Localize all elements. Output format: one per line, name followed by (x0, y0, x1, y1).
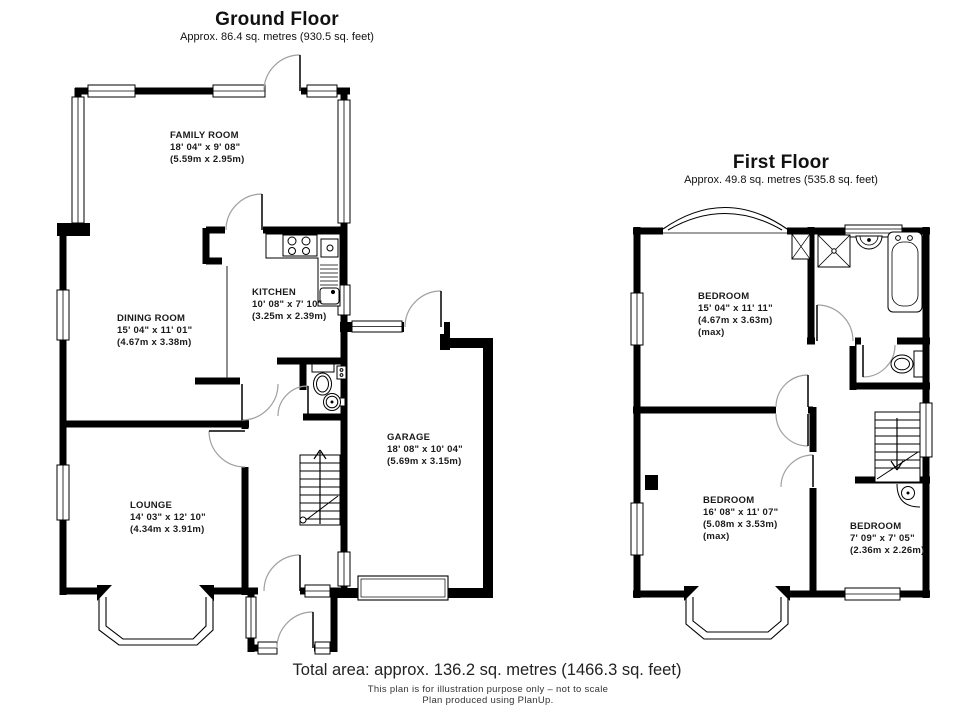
garage-door (358, 576, 448, 600)
bay-window (684, 586, 790, 639)
toilet-icon (312, 364, 334, 395)
boiler-icon (337, 366, 346, 379)
room-dim-m: (4.34m x 3.91m) (130, 524, 206, 536)
door-arc (863, 345, 895, 377)
total-area-text: Total area: approx. 136.2 sq. metres (14… (293, 661, 682, 680)
room-dim-ft: 15' 04" x 11' 11" (698, 303, 773, 315)
toilet-icon (891, 351, 923, 377)
stairs-icon (300, 450, 340, 525)
room-name: BEDROOM (698, 291, 773, 303)
walls (57, 88, 493, 652)
room-note: (max) (703, 531, 778, 543)
shower-icon (818, 235, 850, 267)
room-name: DINING ROOM (117, 313, 192, 325)
room-label-garage: GARAGE 18' 08" x 10' 04" (5.69m x 3.15m) (387, 432, 463, 468)
room-name: FAMILY ROOM (170, 130, 245, 142)
door-arc (209, 431, 245, 467)
door-arc (817, 305, 853, 341)
floorplan-page: Ground Floor Approx. 86.4 sq. metres (93… (0, 0, 980, 712)
room-label-kitchen: KITCHEN 10' 08" x 7' 10" (3.25m x 2.39m) (252, 287, 327, 323)
room-name: BEDROOM (703, 495, 778, 507)
door-arc (242, 384, 278, 420)
first-floor-subtitle: Approx. 49.8 sq. metres (535.8 sq. feet) (684, 174, 878, 186)
ground-floor-subtitle: Approx. 86.4 sq. metres (930.5 sq. feet) (180, 31, 374, 43)
corner-basin-icon (897, 484, 920, 507)
room-label-bedroom-1: BEDROOM 15' 04" x 11' 11" (4.67m x 3.63m… (698, 291, 773, 339)
disclaimer-text: This plan is for illustration purpose on… (368, 684, 608, 695)
washbasin-icon (856, 236, 882, 249)
bow-window (663, 208, 787, 234)
ground-floor-plan (57, 55, 493, 655)
room-dim-m: (4.67m x 3.38m) (117, 337, 192, 349)
room-dim-ft: 16' 08" x 11' 07" (703, 507, 778, 519)
room-dim-ft: 10' 08" x 7' 10" (252, 299, 327, 311)
bath-icon (888, 232, 922, 312)
room-dim-m: (3.25m x 2.39m) (252, 311, 327, 323)
credit-text: Plan produced using PlanUp. (422, 695, 553, 706)
room-dim-ft: 18' 08" x 10' 04" (387, 444, 463, 456)
room-dim-ft: 7' 09" x 7' 05" (850, 533, 925, 545)
bay-window (97, 585, 214, 645)
first-floor-title: First Floor (733, 152, 829, 174)
room-dim-ft: 14' 03" x 12' 10" (130, 512, 206, 524)
first-floor-plan (631, 208, 932, 640)
room-label-family-room: FAMILY ROOM 18' 04" x 9' 08" (5.59m x 2.… (170, 130, 245, 166)
room-name: GARAGE (387, 432, 463, 444)
room-dim-ft: 15' 04" x 11' 01" (117, 325, 192, 337)
room-dim-ft: 18' 04" x 9' 08" (170, 142, 245, 154)
room-dim-m: (5.59m x 2.95m) (170, 154, 245, 166)
room-name: BEDROOM (850, 521, 925, 533)
windows (57, 85, 402, 654)
room-label-dining-room: DINING ROOM 15' 04" x 11' 01" (4.67m x 3… (117, 313, 192, 349)
room-note: (max) (698, 327, 773, 339)
room-label-bedroom-3: BEDROOM 7' 09" x 7' 05" (2.36m x 2.26m) (850, 521, 925, 557)
room-label-lounge: LOUNGE 14' 03" x 12' 10" (4.34m x 3.91m) (130, 500, 206, 536)
room-name: KITCHEN (252, 287, 327, 299)
room-dim-m: (2.36m x 2.26m) (850, 545, 925, 557)
door-arc (226, 194, 262, 230)
door-arc (776, 414, 808, 446)
cupboard-icon (792, 234, 810, 259)
room-label-bedroom-2: BEDROOM 16' 08" x 11' 07" (5.08m x 3.53m… (703, 495, 778, 543)
ground-floor-title: Ground Floor (215, 9, 339, 31)
room-dim-m: (4.67m x 3.63m) (698, 315, 773, 327)
room-dim-m: (5.08m x 3.53m) (703, 519, 778, 531)
hob-icon (283, 235, 317, 256)
room-name: LOUNGE (130, 500, 206, 512)
floorplan-drawing (0, 0, 980, 712)
stairs-icon (875, 412, 920, 482)
kitchen-appliance-icon (321, 239, 338, 257)
door-arc (776, 375, 808, 407)
room-dim-m: (5.69m x 3.15m) (387, 456, 463, 468)
door-arc (278, 386, 308, 416)
